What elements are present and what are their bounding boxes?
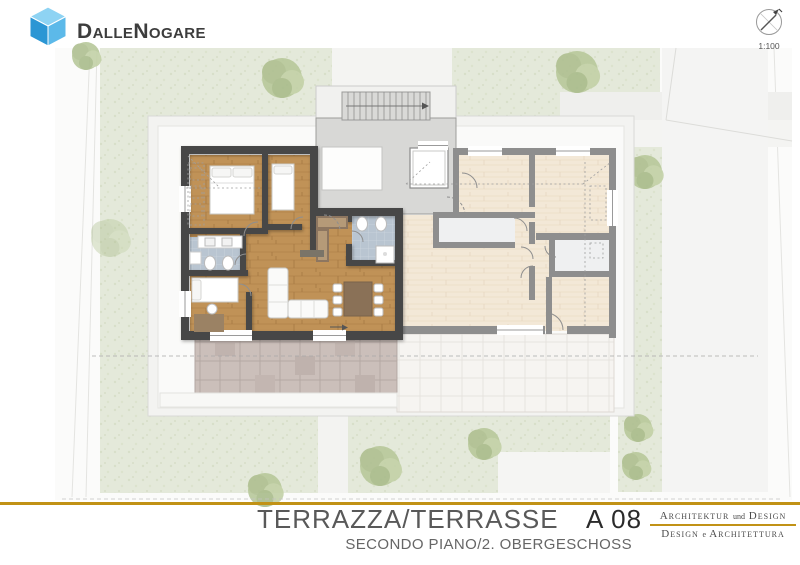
studio-tagline: Architektur und Design Design e Architet… <box>650 510 796 540</box>
logo-cube-icon <box>28 6 68 48</box>
terrace-neighbor <box>397 334 614 412</box>
north-arrow-icon <box>750 6 788 38</box>
bed-third <box>192 278 238 302</box>
room-bath-neighbor-1 <box>439 218 515 242</box>
elevator <box>410 148 448 188</box>
brand-name: DalleNogare <box>77 20 206 44</box>
dining-set <box>333 282 383 316</box>
bed-single <box>272 164 294 210</box>
brand-logo: DalleNogare <box>28 6 206 48</box>
scale-label: 1:100 <box>748 41 790 51</box>
sheet-title: TERRAZZA/TERRASSE <box>257 504 559 535</box>
studio-tagline-line1: Architektur und Design <box>650 510 796 526</box>
staircase <box>342 92 430 120</box>
drawing-sheet: DalleNogare 1:100 TERRAZZA/TERRASSE A 08… <box>0 0 800 565</box>
stair-void <box>322 147 382 190</box>
north-compass: 1:100 <box>748 6 790 51</box>
room-bath-neighbor-2 <box>555 240 609 271</box>
terrace-a08 <box>160 337 397 407</box>
bed-double <box>210 166 254 214</box>
sheet-subtitle: SECONDO PIANO/2. OBERGESCHOSS <box>330 536 632 553</box>
sheet-code: A 08 <box>586 504 642 535</box>
tv-bench <box>300 250 324 257</box>
stair-window <box>418 141 448 150</box>
studio-tagline-line2: Design e Architettura <box>650 526 796 540</box>
site-plan <box>0 0 800 565</box>
